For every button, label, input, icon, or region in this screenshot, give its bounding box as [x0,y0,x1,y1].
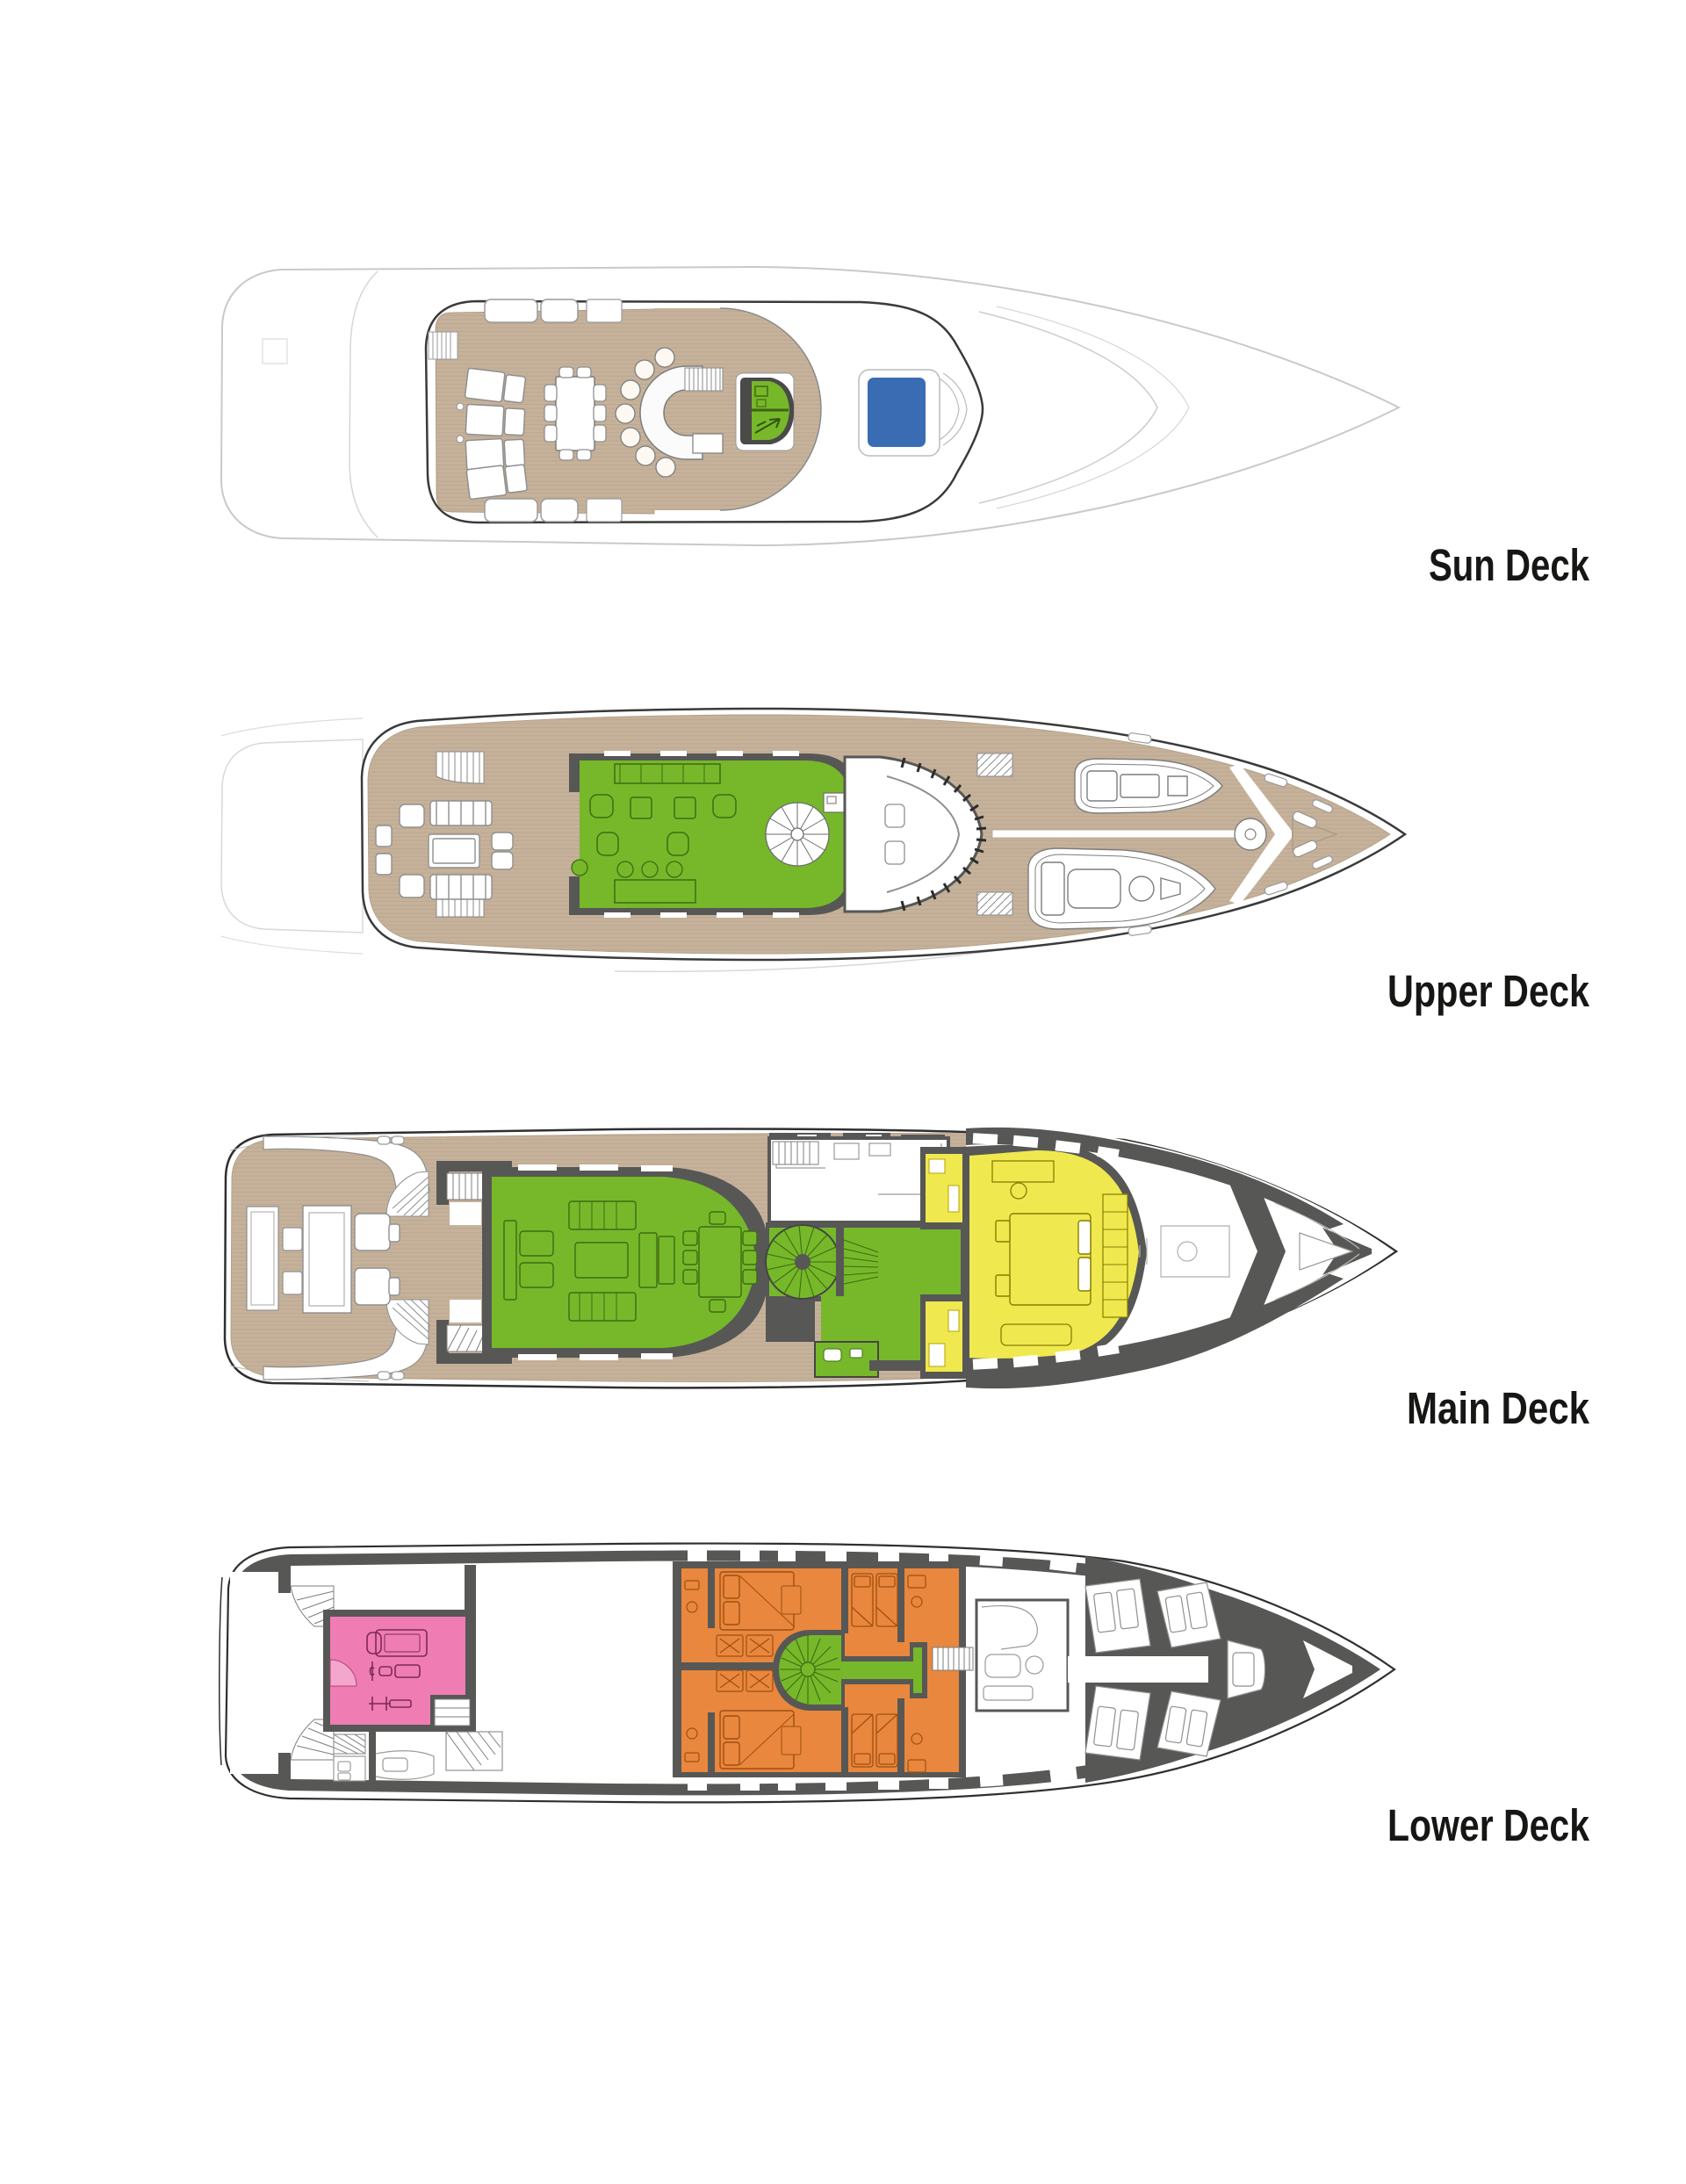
svg-text:Upper Deck: Upper Deck [1387,966,1590,1016]
svg-text:Main Deck: Main Deck [1407,1383,1590,1433]
svg-text:Sun Deck: Sun Deck [1429,540,1589,590]
svg-text:Lower Deck: Lower Deck [1387,1800,1590,1850]
